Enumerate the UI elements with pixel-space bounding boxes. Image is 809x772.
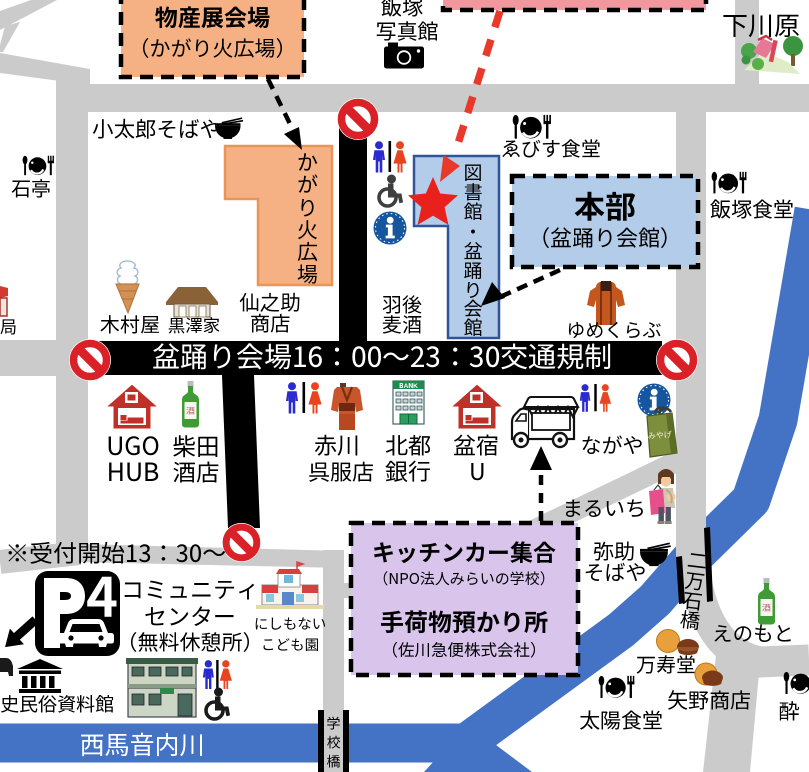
svg-text:黒澤家: 黒澤家 bbox=[168, 313, 221, 338]
svg-text:呉服店: 呉服店 bbox=[308, 455, 374, 487]
svg-text:（かがり火広場）: （かがり火広場） bbox=[129, 33, 297, 63]
svg-text:史民俗資料館: 史民俗資料館 bbox=[0, 690, 114, 717]
svg-text:飯塚食堂: 飯塚食堂 bbox=[710, 194, 794, 224]
svg-text:局: 局 bbox=[0, 313, 17, 338]
svg-text:まるいち: まるいち bbox=[562, 493, 646, 523]
svg-text:そばや: そばや bbox=[584, 557, 647, 587]
svg-text:矢野商店: 矢野商店 bbox=[667, 685, 751, 715]
svg-text:物産展会場: 物産展会場 bbox=[155, 0, 270, 33]
svg-text:万寿堂: 万寿堂 bbox=[636, 649, 696, 678]
svg-text:麦酒: 麦酒 bbox=[382, 309, 422, 338]
svg-text:HUB: HUB bbox=[107, 453, 160, 489]
svg-text:（佐川急便株式会社）: （佐川急便株式会社） bbox=[382, 637, 547, 661]
svg-text:石亭: 石亭 bbox=[11, 173, 51, 202]
svg-text:U: U bbox=[469, 453, 486, 487]
svg-text:（無料休憩所）: （無料休憩所） bbox=[117, 627, 264, 657]
svg-text:手荷物預かり所: 手荷物預かり所 bbox=[380, 603, 548, 638]
svg-text:下川原: 下川原 bbox=[722, 6, 800, 43]
svg-text:ゑびす食堂: ゑびす食堂 bbox=[501, 133, 601, 162]
svg-text:盆踊り会場16：00～23：30交通規制: 盆踊り会場16：00～23：30交通規制 bbox=[152, 336, 612, 376]
svg-text:酒店: 酒店 bbox=[173, 454, 220, 488]
svg-text:（盆踊り会館）: （盆踊り会館） bbox=[528, 221, 682, 253]
svg-text:かがり火広場: かがり火広場 bbox=[293, 151, 323, 284]
svg-text:（NPO法人みらいの学校）: （NPO法人みらいの学校） bbox=[373, 568, 554, 589]
svg-text:西馬音内川: 西馬音内川 bbox=[79, 726, 204, 762]
svg-text:図書館・盆踊り会館: 図書館・盆踊り会館 bbox=[460, 163, 487, 337]
svg-text:酔: 酔 bbox=[779, 696, 800, 726]
svg-text:木村屋: 木村屋 bbox=[100, 309, 160, 338]
svg-text:えのもと: えのもと bbox=[712, 617, 794, 647]
svg-text:みやげ: みやげ bbox=[647, 429, 672, 442]
svg-text:キッチンカー集合: キッチンカー集合 bbox=[372, 534, 556, 568]
svg-text:こども園: こども園 bbox=[261, 634, 319, 655]
svg-text:ながや: ながや bbox=[581, 430, 644, 460]
svg-text:学校橋: 学校橋 bbox=[324, 716, 344, 768]
svg-text:太陽食堂: 太陽食堂 bbox=[579, 705, 663, 735]
svg-text:商店: 商店 bbox=[250, 307, 291, 337]
svg-text:銀行: 銀行 bbox=[385, 453, 431, 487]
svg-text:小太郎そばや: 小太郎そばや bbox=[92, 113, 221, 144]
svg-text:BANK: BANK bbox=[399, 380, 418, 390]
svg-text:にしもない: にしもない bbox=[254, 613, 327, 634]
svg-text:写真館: 写真館 bbox=[376, 16, 439, 46]
svg-text:※受付開始13：30～: ※受付開始13：30～ bbox=[5, 534, 226, 569]
